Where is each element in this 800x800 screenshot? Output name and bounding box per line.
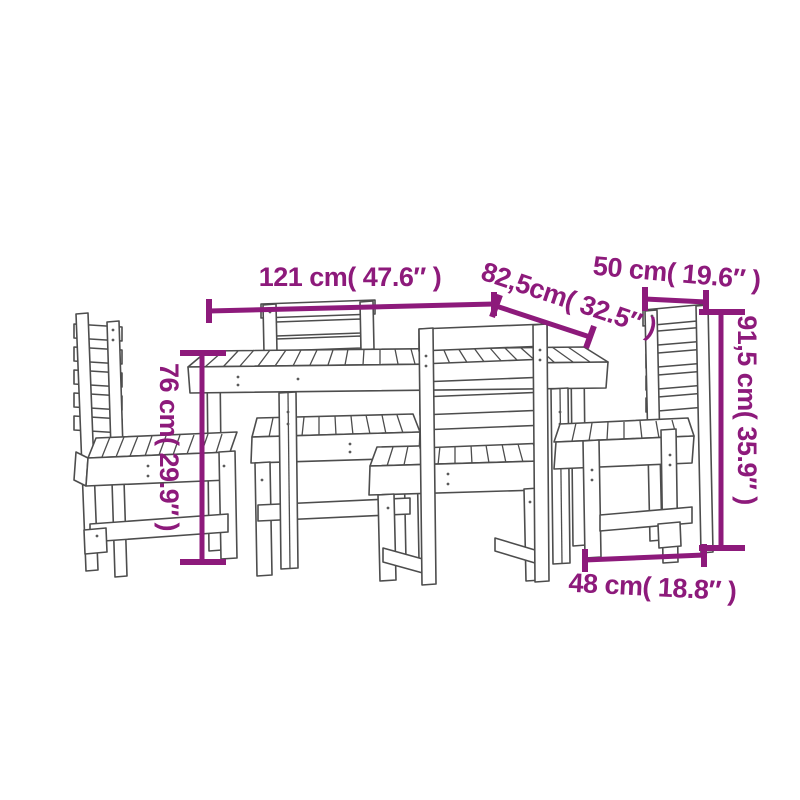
dimension-table-width-label: 121 cm( 47.6″ ) [259,262,442,292]
dimension-chair-height-label: 91,5 cm( 35.9″ ) [732,315,762,505]
dimension-table-height-label: 76 cm( 29.9″ ) [154,363,184,531]
dining-set-diagram: 121 cm( 47.6″ ) 82,5cm( 32.5″ ) 50 cm( 1… [0,0,800,800]
product-dimension-image: 121 cm( 47.6″ ) 82,5cm( 32.5″ ) 50 cm( 1… [0,0,800,800]
dimension-chair-depth-label: 48 cm( 18.8″ ) [568,568,737,607]
dimension-chair-width-label: 50 cm( 19.6″ ) [592,251,762,296]
